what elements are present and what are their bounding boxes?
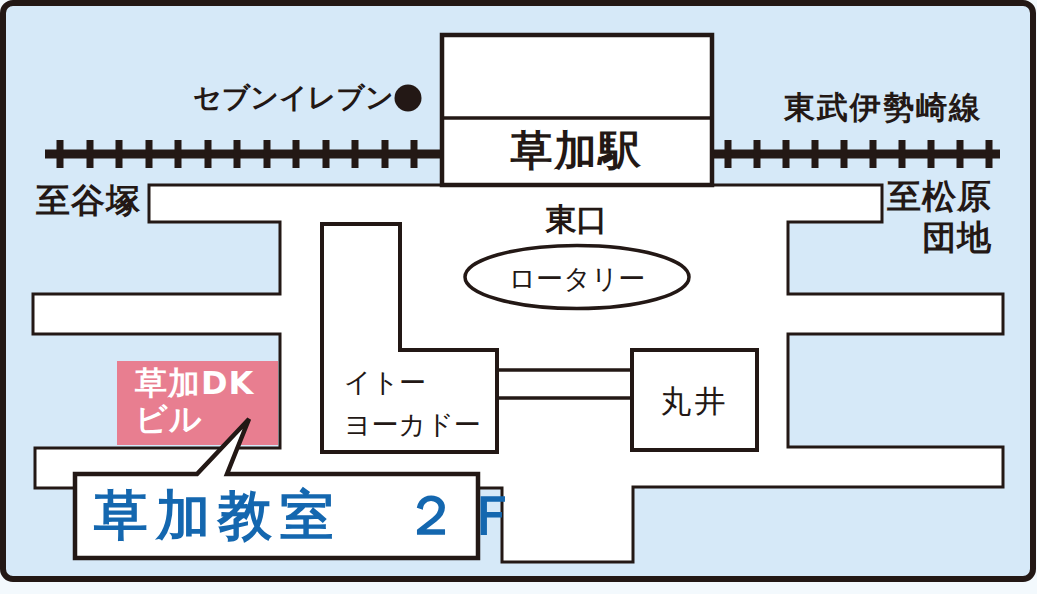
to-yatsuka-label: 至谷塚 <box>36 180 141 221</box>
east-exit-label: 東口 <box>441 201 712 238</box>
seven-eleven-label: セブンイレブン <box>193 81 394 115</box>
classroom-label: 草加教室 ２Ｆ <box>94 486 528 545</box>
soka-area-map: セブンイレブン 東武伊勢崎線 至谷塚 至松原 団地 草加駅 東口 ロータリー イ… <box>0 0 1037 594</box>
seven-eleven-dot-icon <box>395 85 422 112</box>
dk-building-label: 草加DK ビル <box>135 366 254 438</box>
marui-label: 丸井 <box>632 383 757 420</box>
to-matsubara-label: 至松原 団地 <box>852 176 992 259</box>
ito-yokado-label: イトー ヨーカドー <box>344 362 481 446</box>
railway-line-label: 東武伊勢崎線 <box>784 89 982 126</box>
station-label: 草加駅 <box>441 126 712 176</box>
rotary-label: ロータリー <box>465 263 689 295</box>
